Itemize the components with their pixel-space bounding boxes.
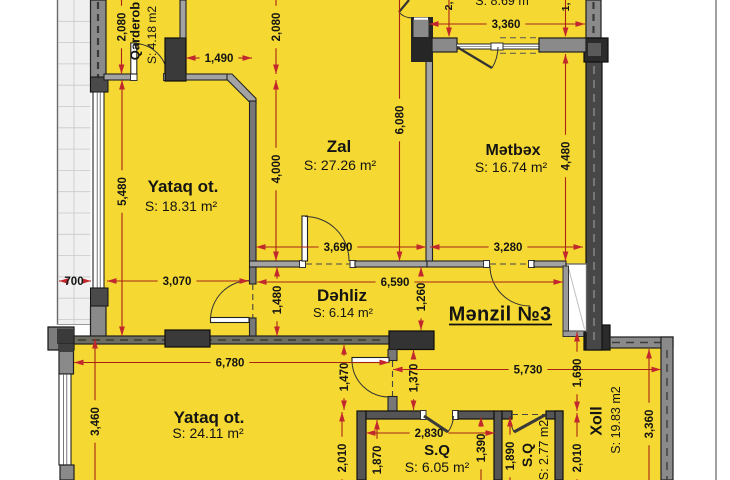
svg-text:6,590: 6,590	[381, 277, 410, 289]
svg-text:S: 18.31 m²: S: 18.31 m²	[145, 198, 218, 214]
svg-text:5,480: 5,480	[117, 177, 129, 206]
svg-text:5,730: 5,730	[514, 365, 543, 377]
svg-text:3,360: 3,360	[492, 19, 521, 31]
svg-text:1,370: 1,370	[409, 364, 421, 393]
svg-text:S: 27.26 m²: S: 27.26 m²	[304, 157, 377, 173]
svg-text:1,690: 1,690	[572, 359, 584, 388]
svg-text:6,780: 6,780	[216, 358, 245, 370]
svg-text:S: 6.05 m²: S: 6.05 m²	[405, 459, 470, 475]
svg-text:Yataq ot.: Yataq ot.	[148, 177, 219, 196]
svg-text:1,490: 1,490	[205, 53, 234, 65]
svg-text:1,870: 1,870	[372, 446, 384, 475]
svg-text:3,360: 3,360	[644, 410, 656, 439]
svg-text:Qarderob: Qarderob	[128, 2, 143, 61]
svg-text:2,: 2,	[443, 2, 455, 11]
svg-text:2,010: 2,010	[572, 444, 584, 473]
svg-text:S: 24.11 m²: S: 24.11 m²	[172, 425, 244, 441]
svg-text:S: 6.14 m²: S: 6.14 m²	[313, 305, 374, 320]
svg-text:3,070: 3,070	[163, 276, 192, 288]
svg-text:1,390: 1,390	[476, 434, 488, 463]
svg-text:1,470: 1,470	[339, 363, 351, 392]
svg-text:1,480: 1,480	[272, 286, 284, 315]
svg-text:Dəhliz: Dəhliz	[317, 286, 367, 305]
svg-text:S: 16.74 m²: S: 16.74 m²	[475, 159, 548, 175]
svg-text:S: 19.83 m2: S: 19.83 m2	[609, 386, 623, 453]
svg-text:1,260: 1,260	[416, 283, 428, 312]
svg-text:S: 4.18 m2: S: 4.18 m2	[145, 6, 159, 64]
svg-text:Xoll: Xoll	[589, 406, 606, 435]
svg-text:2,830: 2,830	[415, 428, 444, 440]
svg-text:1,890: 1,890	[505, 442, 517, 471]
svg-text:Mətbəx: Mətbəx	[485, 142, 540, 159]
svg-text:2,010: 2,010	[337, 444, 349, 473]
svg-text:2,080: 2,080	[271, 13, 283, 42]
svg-text:3,280: 3,280	[494, 242, 523, 254]
svg-text:S: 8.69 m: S: 8.69 m	[475, 0, 529, 8]
svg-text:S.Q: S.Q	[519, 443, 535, 467]
svg-text:Zal: Zal	[327, 137, 352, 156]
svg-text:3,690: 3,690	[324, 242, 353, 254]
svg-text:S.Q: S.Q	[424, 442, 450, 459]
svg-text:4,480: 4,480	[561, 142, 573, 171]
svg-text:700: 700	[64, 276, 83, 288]
svg-text:6,080: 6,080	[395, 106, 407, 135]
svg-text:3,460: 3,460	[90, 407, 102, 436]
svg-text:4,000: 4,000	[271, 155, 283, 184]
svg-text:1,: 1,	[560, 3, 572, 12]
svg-text:Mənzil №3: Mənzil №3	[449, 304, 552, 326]
svg-text:S: 2.77 m2: S: 2.77 m2	[537, 420, 551, 480]
